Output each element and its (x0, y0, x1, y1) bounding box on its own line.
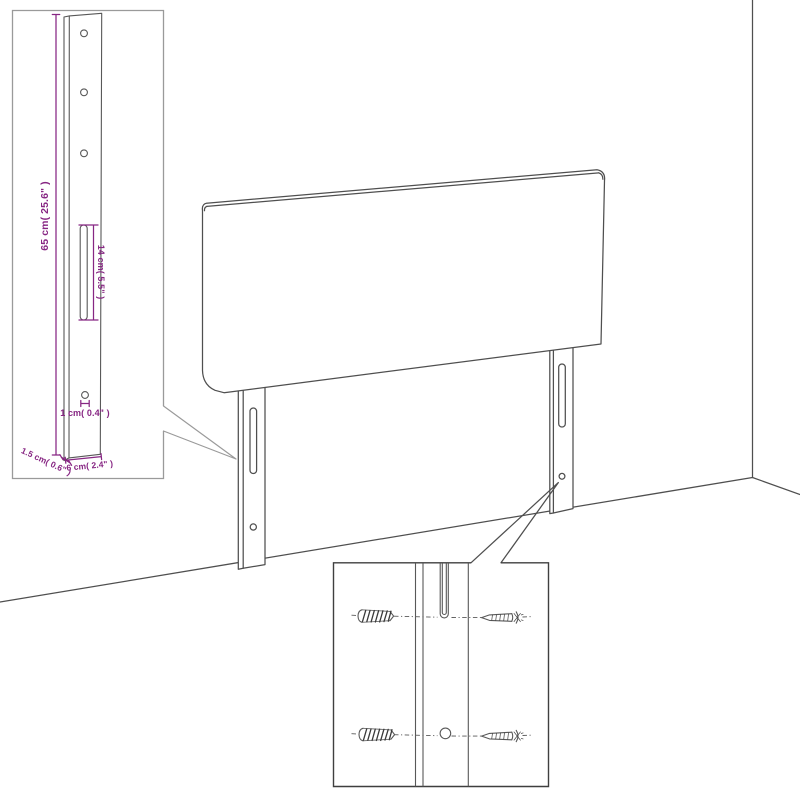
post-slot (80, 225, 87, 320)
threaded-screw-icon (358, 610, 394, 623)
post-hole (81, 30, 88, 37)
dimension-label-slot: 14 cm( 5.5" ) (96, 245, 106, 300)
leg-strip-closeup (416, 564, 469, 787)
strip-slot-inner (442, 564, 446, 615)
dimension-height: 65 cm( 25.6" ) (39, 15, 60, 456)
pointed-screw-icon (482, 730, 524, 741)
threaded-screw-icon (359, 728, 395, 741)
leg-post-drawing (64, 13, 102, 460)
post-hole (81, 150, 88, 157)
strip-slot (440, 564, 448, 618)
post-hole (81, 89, 88, 96)
floor-line-right (753, 478, 800, 495)
mounting-slot (250, 408, 257, 474)
dimension-label-height: 65 cm( 25.6" ) (39, 181, 51, 250)
dimension-thickness: 1.5 cm( 0.6" ) (20, 445, 73, 477)
dimension-width: 6 cm( 2.4" ) (65, 454, 113, 473)
panel-outline (202, 170, 604, 393)
mounting-slot (559, 364, 566, 427)
callout-leader-lines (471, 483, 558, 563)
post-bottom-hole (82, 392, 89, 399)
floor-line-left (0, 478, 753, 603)
assembly-diagram-page: 65 cm( 25.6" ) 14 cm( 5.5" ) 1 cm( 0.4" … (0, 0, 800, 800)
screw-hole (559, 473, 565, 479)
pointed-screw-icon (482, 612, 524, 623)
dimension-label-hole: 1 cm( 0.4" ) (60, 408, 110, 418)
strip-hole (440, 728, 451, 739)
dimension-slot-length: 14 cm( 5.5" ) (79, 225, 106, 320)
dimension-label-thickness: 1.5 cm( 0.6" ) (20, 445, 73, 477)
dimension-label-width: 6 cm( 2.4" ) (66, 458, 114, 472)
dimension-hole-diameter: 1 cm( 0.4" ) (60, 401, 110, 419)
screw-hole (250, 524, 256, 530)
callout-leader-lines (164, 406, 237, 459)
inset-border (334, 563, 549, 787)
headboard-panel (202, 170, 604, 393)
left-leg (238, 380, 265, 569)
assembly-diagram: 65 cm( 25.6" ) 14 cm( 5.5" ) 1 cm( 0.4" … (0, 0, 800, 800)
